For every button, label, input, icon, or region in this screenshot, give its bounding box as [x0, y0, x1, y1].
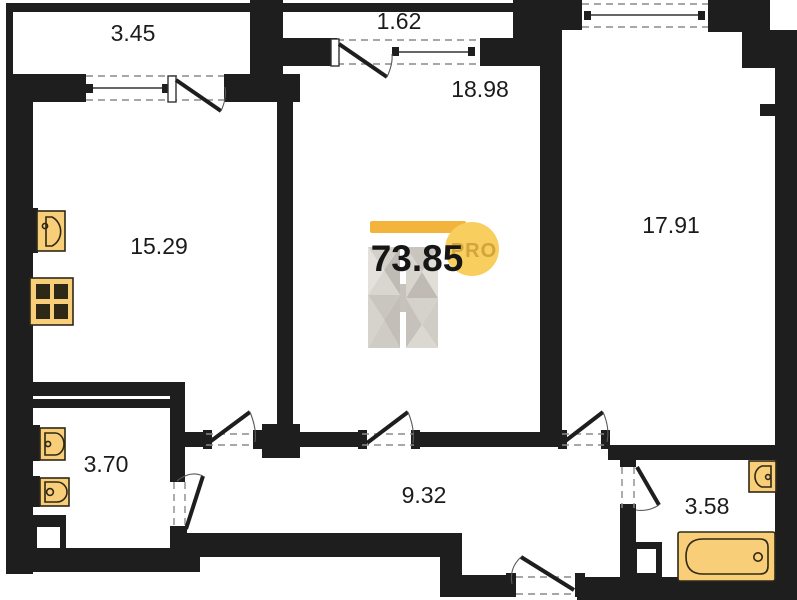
- logo-watermark: PRO 73.85: [368, 221, 499, 348]
- area-label-bathroom-left: 3.70: [84, 451, 129, 477]
- bathtub-icon: [678, 532, 775, 581]
- washbasin-left-icon: [30, 425, 65, 461]
- door-bathroom-right: [622, 467, 659, 510]
- area-label-bathroom-right: 3.58: [685, 493, 730, 519]
- area-label-balcony-top-left: 3.45: [111, 20, 156, 46]
- area-label-hallway: 9.32: [402, 482, 447, 508]
- toilet-icon: [26, 476, 69, 507]
- area-label-room-left: 15.29: [130, 233, 188, 259]
- window-room-right: [582, 4, 708, 27]
- area-label-room-right: 17.91: [642, 212, 700, 238]
- logo-bar: [370, 221, 466, 233]
- floor-plan-svg: PRO 73.85 3.45 1.62 18.98 17.91 15.29 3.…: [0, 0, 797, 600]
- area-label-room-top-middle: 18.98: [451, 76, 509, 102]
- duct-cutout-left: [37, 527, 60, 548]
- kitchen-sink-icon: [30, 208, 65, 253]
- washbasin-right-icon: [749, 461, 776, 492]
- window-kitchen: [86, 76, 226, 111]
- door-room-top-middle: [362, 412, 414, 445]
- door-bathroom-left: [174, 474, 203, 530]
- duct-cutout-right: [637, 549, 656, 573]
- floor-plan: PRO 73.85 3.45 1.62 18.98 17.91 15.29 3.…: [0, 0, 797, 600]
- total-area-label: 73.85: [371, 238, 464, 279]
- stove-icon: [30, 278, 73, 325]
- window-balcony-middle: [331, 39, 480, 77]
- door-entrance: [511, 557, 575, 594]
- area-label-balcony-top-middle: 1.62: [377, 8, 422, 34]
- door-room-left: [206, 412, 255, 445]
